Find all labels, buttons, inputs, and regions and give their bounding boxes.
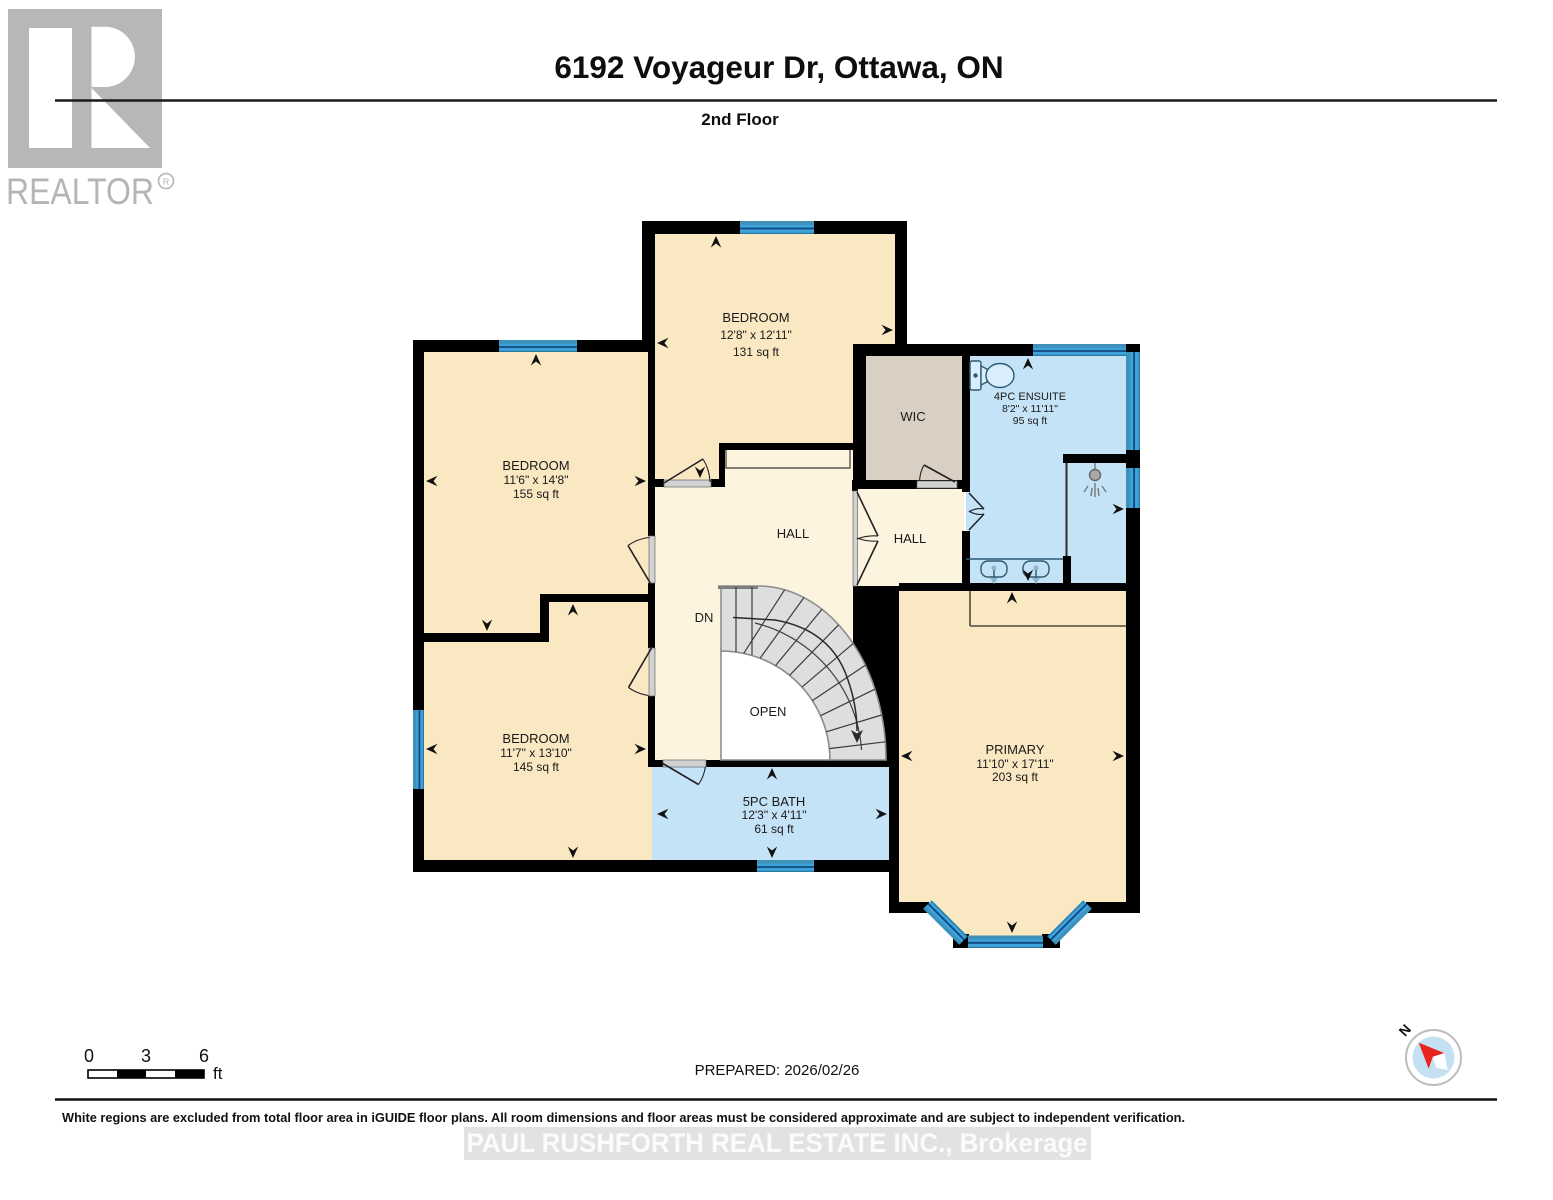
svg-text:OPEN: OPEN [750,704,787,719]
svg-text:2nd Floor: 2nd Floor [701,110,779,129]
svg-text:HALL: HALL [777,526,810,541]
svg-text:0: 0 [84,1046,94,1066]
svg-text:WIC: WIC [900,409,925,424]
svg-text:155 sq ft: 155 sq ft [513,487,560,501]
svg-text:R: R [163,177,170,187]
svg-text:HALL: HALL [894,531,927,546]
svg-text:PREPARED: 2026/02/26: PREPARED: 2026/02/26 [695,1062,860,1079]
svg-text:61 sq ft: 61 sq ft [754,822,794,836]
svg-text:BEDROOM: BEDROOM [502,458,569,473]
svg-text:12'3" x 4'11": 12'3" x 4'11" [742,808,807,822]
svg-text:11'6" x 14'8": 11'6" x 14'8" [504,473,569,487]
svg-text:ft: ft [213,1064,223,1083]
svg-text:5PC BATH: 5PC BATH [743,794,806,809]
svg-text:REALTOR: REALTOR [6,171,154,212]
svg-text:White regions are excluded fro: White regions are excluded from total fl… [62,1110,1185,1125]
svg-text:4PC ENSUITE: 4PC ENSUITE [994,391,1066,403]
svg-text:DN: DN [695,610,714,625]
svg-text:8'2" x 11'11": 8'2" x 11'11" [1002,403,1058,415]
svg-text:95 sq ft: 95 sq ft [1013,415,1048,427]
svg-text:11'10" x 17'11": 11'10" x 17'11" [976,757,1053,771]
svg-text:12'8" x 12'11": 12'8" x 12'11" [720,328,792,342]
svg-text:PRIMARY: PRIMARY [986,742,1045,757]
svg-text:BEDROOM: BEDROOM [502,731,569,746]
svg-text:11'7" x 13'10": 11'7" x 13'10" [500,746,572,760]
svg-text:131 sq ft: 131 sq ft [733,345,780,359]
svg-text:145 sq ft: 145 sq ft [513,760,560,774]
svg-text:6: 6 [199,1046,209,1066]
svg-text:203 sq ft: 203 sq ft [992,770,1039,784]
svg-text:3: 3 [141,1046,151,1066]
svg-text:6192 Voyageur Dr, Ottawa, ON: 6192 Voyageur Dr, Ottawa, ON [554,49,1003,85]
svg-text:PAUL RUSHFORTH REAL ESTATE INC: PAUL RUSHFORTH REAL ESTATE INC., Brokera… [467,1128,1088,1158]
svg-text:BEDROOM: BEDROOM [722,310,789,325]
